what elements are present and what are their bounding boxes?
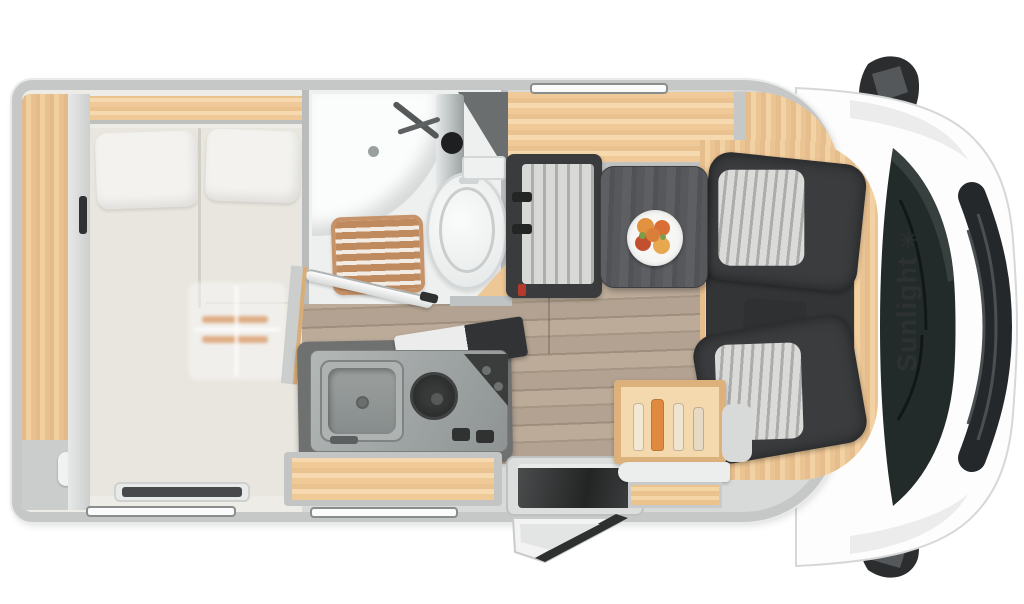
camper-floorplan: Sunlight ✳ — [0, 0, 1024, 604]
entry-door-open — [0, 0, 1024, 604]
